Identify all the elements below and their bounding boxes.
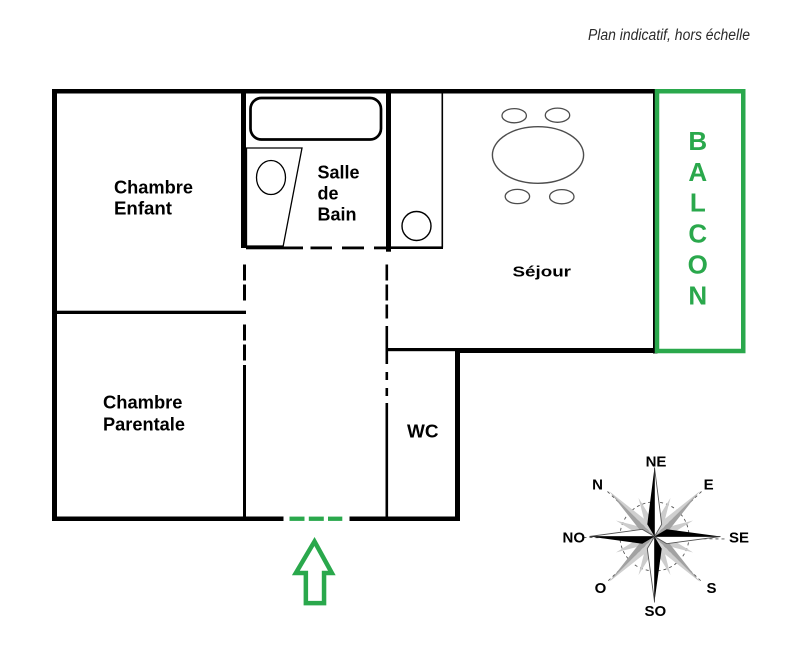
svg-text:WC: WC — [407, 420, 439, 441]
svg-text:Bain: Bain — [318, 204, 357, 224]
svg-text:O: O — [688, 250, 708, 280]
svg-text:N: N — [592, 477, 603, 494]
svg-text:Chambre: Chambre — [114, 177, 193, 197]
svg-text:Parentale: Parentale — [103, 414, 185, 434]
svg-text:Salle: Salle — [318, 162, 360, 182]
svg-text:N: N — [688, 280, 707, 310]
svg-text:Chambre: Chambre — [103, 392, 183, 412]
svg-text:de: de — [318, 183, 339, 203]
svg-text:SO: SO — [644, 603, 666, 620]
svg-text:SE: SE — [729, 529, 749, 546]
svg-text:Séjour: Séjour — [513, 264, 572, 281]
svg-text:Enfant: Enfant — [114, 199, 172, 219]
svg-text:NE: NE — [646, 454, 667, 471]
svg-text:Plan indicatif, hors échelle: Plan indicatif, hors échelle — [588, 27, 750, 44]
svg-text:E: E — [704, 477, 714, 494]
svg-text:S: S — [706, 580, 716, 597]
svg-text:B: B — [688, 126, 707, 156]
svg-text:O: O — [595, 580, 607, 597]
svg-text:A: A — [688, 157, 707, 187]
svg-text:NO: NO — [563, 529, 586, 546]
svg-text:L: L — [690, 188, 706, 218]
svg-text:C: C — [688, 219, 707, 249]
